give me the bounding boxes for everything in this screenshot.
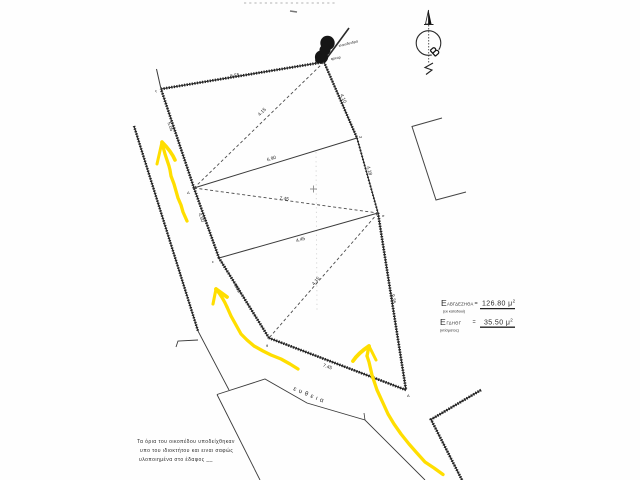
svg-text:(κτίσματος): (κτίσματος) — [440, 329, 460, 333]
svg-text:ΓΔΗΘΓ: ΓΔΗΘΓ — [447, 321, 462, 326]
svg-text:126.80 μ2: 126.80 μ2 — [482, 299, 516, 308]
svg-text:9.35: 9.35 — [389, 294, 397, 305]
svg-text:=: = — [473, 320, 476, 326]
svg-text:Α: Α — [407, 393, 410, 398]
svg-text:7.45: 7.45 — [322, 363, 333, 372]
svg-text:35.50 μ2: 35.50 μ2 — [484, 318, 513, 327]
svg-text:υλοποιημένα στο έδαφος __: υλοποιημένα στο έδαφος __ — [139, 456, 213, 463]
svg-text:υπο του ιδιοκτήτου και ειν: υπο του ιδιοκτήτου και ειναι σαφώς — [140, 447, 233, 454]
svg-text:ευθεια: ευθεια — [292, 385, 327, 405]
svg-text:4.50: 4.50 — [197, 212, 206, 223]
svg-text:4.45: 4.45 — [295, 236, 306, 244]
svg-text:φρεαρ: φρεαρ — [330, 55, 341, 61]
svg-text:ελαιοδενδρα: ελαιοδενδρα — [338, 39, 358, 48]
svg-text:ε: ε — [212, 259, 214, 264]
svg-text:ς: ς — [155, 88, 157, 93]
svg-text:Δ: Δ — [187, 190, 190, 195]
svg-text:4.10: 4.10 — [338, 93, 347, 104]
svg-text:4.15: 4.15 — [257, 107, 268, 118]
svg-text:θ: θ — [266, 343, 269, 348]
svg-text:4.18: 4.18 — [365, 165, 373, 176]
svg-text:Τα όρια του οικοπέδου υποδ: Τα όρια του οικοπέδου υποδείχθηκαν — [137, 438, 235, 445]
svg-text:6.90: 6.90 — [266, 155, 277, 164]
svg-text:4.15: 4.15 — [311, 276, 322, 287]
svg-text:ΑΒΓΔΕΖΗΘΑ: ΑΒΓΔΕΖΗΘΑ — [447, 302, 473, 307]
svg-text:7.45: 7.45 — [279, 195, 289, 202]
svg-text:Ε: Ε — [440, 317, 446, 327]
svg-text:8.55: 8.55 — [230, 72, 241, 80]
svg-text:(εκ καταδουί): (εκ καταδουί) — [443, 310, 466, 314]
svg-text:ω: ω — [359, 134, 362, 139]
svg-text:σ: σ — [382, 213, 385, 218]
svg-text:=: = — [475, 301, 478, 307]
